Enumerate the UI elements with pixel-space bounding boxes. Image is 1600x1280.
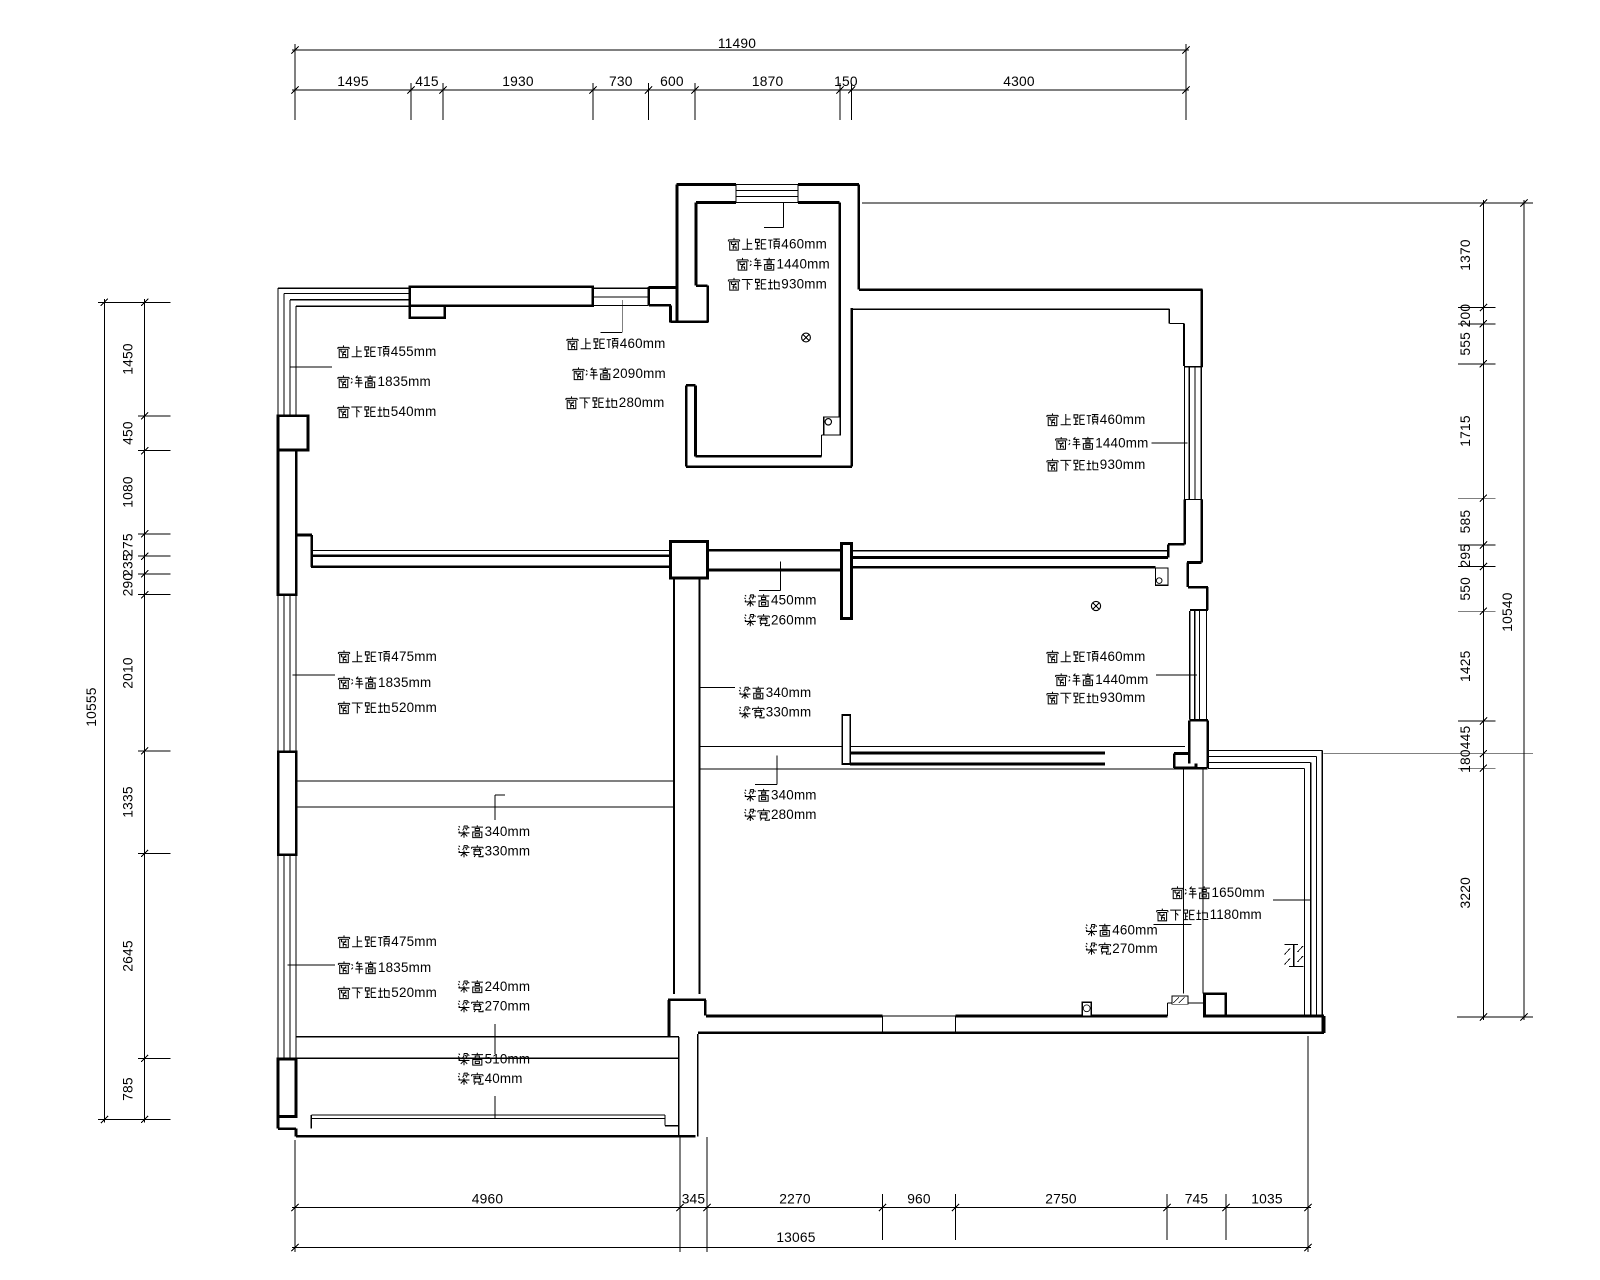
svg-text:290: 290	[121, 573, 136, 597]
svg-text:280mm: 280mm	[619, 395, 665, 410]
svg-text:1450: 1450	[121, 343, 136, 375]
svg-text:930mm: 930mm	[1100, 690, 1146, 705]
svg-text:2090mm: 2090mm	[613, 366, 666, 381]
svg-text:585: 585	[1458, 510, 1473, 534]
svg-text:1180mm: 1180mm	[1210, 907, 1262, 922]
svg-text:520mm: 520mm	[391, 700, 437, 715]
svg-text:280mm: 280mm	[771, 807, 817, 822]
svg-text:455mm: 455mm	[391, 344, 437, 359]
svg-text:930mm: 930mm	[1100, 457, 1146, 472]
svg-text:510mm: 510mm	[485, 1051, 531, 1066]
svg-text:460mm: 460mm	[1100, 649, 1146, 664]
svg-text:1495: 1495	[337, 74, 369, 89]
svg-text:4960: 4960	[472, 1192, 504, 1207]
svg-text:1080: 1080	[121, 476, 136, 508]
svg-text:200: 200	[1458, 304, 1473, 328]
svg-text:260mm: 260mm	[771, 612, 817, 627]
svg-text:270mm: 270mm	[485, 998, 531, 1013]
svg-text:13065: 13065	[776, 1230, 815, 1245]
svg-text:415: 415	[415, 74, 439, 89]
svg-text:40mm: 40mm	[485, 1071, 523, 1086]
svg-text:240mm: 240mm	[485, 979, 531, 994]
svg-text:2750: 2750	[1045, 1192, 1077, 1207]
svg-text:1425: 1425	[1458, 650, 1473, 682]
svg-text:4300: 4300	[1003, 74, 1035, 89]
svg-text:460mm: 460mm	[620, 336, 666, 351]
svg-text:1035: 1035	[1251, 1192, 1283, 1207]
svg-text:960: 960	[907, 1192, 931, 1207]
svg-text:330mm: 330mm	[766, 705, 812, 720]
svg-text:600: 600	[660, 74, 684, 89]
svg-text:150: 150	[834, 74, 858, 89]
svg-text:1440mm: 1440mm	[1095, 435, 1148, 450]
svg-text:1835mm: 1835mm	[378, 960, 431, 975]
svg-text:460mm: 460mm	[1100, 412, 1146, 427]
svg-text:1835mm: 1835mm	[378, 374, 431, 389]
svg-text:345: 345	[682, 1192, 706, 1207]
svg-text:1335: 1335	[121, 786, 136, 818]
svg-text:1835mm: 1835mm	[378, 675, 431, 690]
svg-text:3220: 3220	[1458, 877, 1473, 909]
svg-text:930mm: 930mm	[781, 276, 827, 291]
svg-text:270mm: 270mm	[1112, 941, 1158, 956]
svg-text:540mm: 540mm	[391, 404, 437, 419]
svg-text:475mm: 475mm	[391, 649, 437, 664]
svg-text:475mm: 475mm	[391, 934, 437, 949]
svg-text:1930: 1930	[502, 74, 534, 89]
svg-text:745: 745	[1185, 1192, 1209, 1207]
svg-text:730: 730	[609, 74, 633, 89]
svg-text:180: 180	[1458, 749, 1473, 773]
svg-text:2645: 2645	[121, 940, 136, 972]
svg-text:2270: 2270	[779, 1192, 811, 1207]
svg-text:445: 445	[1458, 725, 1473, 749]
svg-text:520mm: 520mm	[391, 985, 437, 1000]
svg-text:460mm: 460mm	[1112, 922, 1158, 937]
svg-text:450: 450	[121, 421, 136, 445]
svg-text:10540: 10540	[1500, 592, 1515, 631]
svg-text:460mm: 460mm	[781, 236, 827, 251]
svg-text:295: 295	[1458, 544, 1473, 568]
svg-text:785: 785	[121, 1077, 136, 1101]
svg-text:11490: 11490	[718, 36, 756, 51]
svg-text:1440mm: 1440mm	[777, 256, 830, 271]
svg-text:1650mm: 1650mm	[1212, 885, 1265, 900]
svg-text:1715: 1715	[1458, 415, 1473, 447]
svg-text:2010: 2010	[121, 657, 136, 689]
svg-text:340mm: 340mm	[485, 824, 531, 839]
svg-text:1370: 1370	[1458, 239, 1473, 271]
svg-text:340mm: 340mm	[766, 685, 812, 700]
svg-text:555: 555	[1458, 332, 1473, 356]
svg-text:550: 550	[1458, 577, 1473, 601]
svg-text:330mm: 330mm	[485, 843, 531, 858]
svg-text:450mm: 450mm	[771, 593, 817, 608]
svg-text:1870: 1870	[752, 74, 784, 89]
svg-text:10555: 10555	[84, 687, 99, 726]
svg-text:340mm: 340mm	[771, 787, 817, 802]
svg-text:1440mm: 1440mm	[1095, 672, 1148, 687]
